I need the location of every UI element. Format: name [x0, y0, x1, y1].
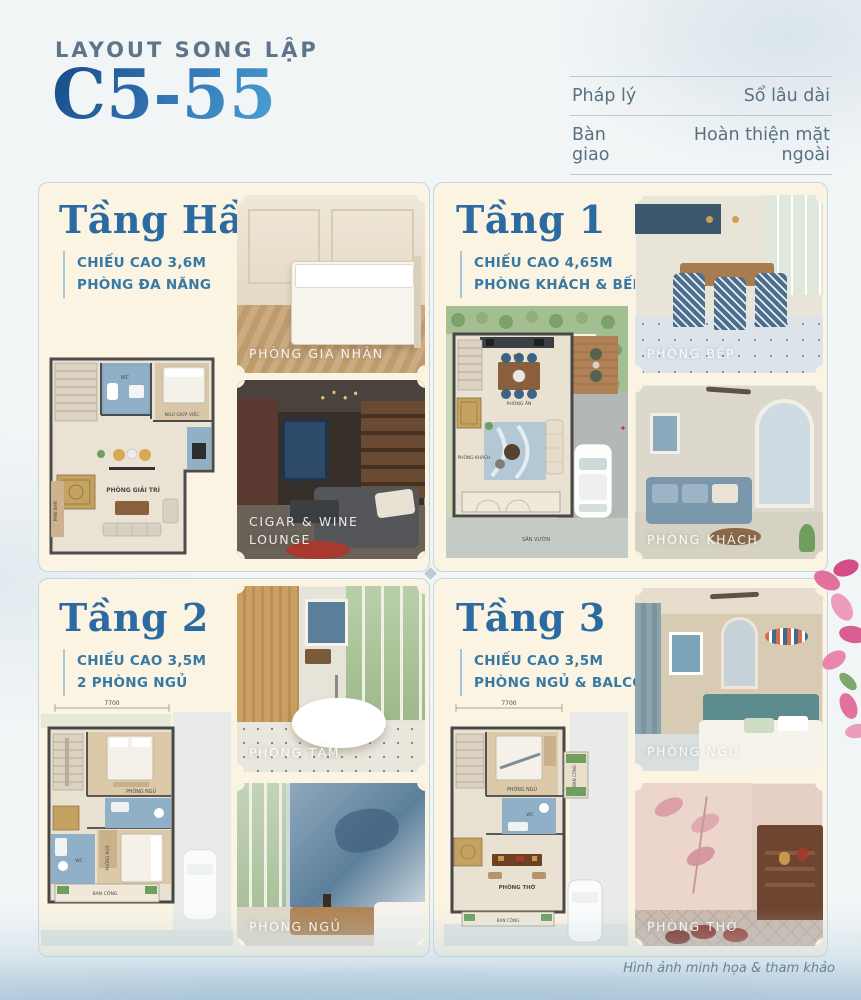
room-label: SÂN VƯỜN [522, 536, 550, 543]
photo-caption: PHÒNG NGỦ [249, 918, 341, 937]
section-tang-1: Tầng 1 CHIẾU CAO 4,65M PHÒNG KHÁCH & BẾP… [433, 182, 828, 572]
photo-caption: PHÒNG NGỦ [647, 743, 739, 762]
photo-caption: PHÒNG KHÁCH [647, 531, 758, 550]
floor-plan-drawing: BẾP PHÒNG ĂN PHÒNG KHÁCH SÂN VƯỜN [446, 306, 628, 558]
art-layer [282, 419, 327, 480]
plan-dimension: 7700 [501, 700, 516, 707]
photo-phong-tam: PHÒNG TẮM [237, 586, 425, 772]
floor-plan-drawing: WC NGỦ GIÚP VIỆC PHÒNG GIẢI TRÍ MINI BAR [45, 355, 229, 557]
art-layer [292, 698, 386, 748]
footer-disclaimer: Hình ảnh minh họa & tham khảo [623, 961, 835, 976]
flower-petal [844, 722, 861, 740]
art-layer [635, 588, 823, 614]
art-layer [650, 413, 680, 454]
room-label: BAN CÔNG [572, 765, 577, 787]
floor-specs: CHIẾU CAO 3,6M PHÒNG ĐA NĂNG [63, 251, 211, 298]
spec-line: CHIẾU CAO 3,5M [77, 651, 206, 673]
photo-caption: CIGAR & WINE LOUNGE [249, 513, 369, 551]
art-layer [335, 675, 338, 697]
info-label: Bàn giao [572, 125, 646, 165]
art-layer [237, 586, 299, 727]
art-layer [361, 401, 425, 498]
info-value: Sổ lâu dài [744, 86, 830, 106]
art-layer [755, 399, 814, 508]
art-layer [316, 387, 361, 405]
spec-line: CHIẾU CAO 3,6M [77, 253, 211, 275]
room-label: WC [526, 812, 534, 818]
floor-specs: CHIẾU CAO 4,65M PHÒNG KHÁCH & BẾP [460, 251, 643, 298]
room-label: MINI BAR [53, 501, 59, 521]
art-layer [799, 524, 816, 552]
room-label: PHÒNG THỜ [499, 884, 536, 891]
art-layer [652, 484, 678, 503]
photo-phong-ngu-tang-3: PHÒNG NGỦ [635, 588, 823, 771]
art-layer [635, 783, 752, 913]
floor-plan-tang-ham: WC NGỦ GIÚP VIỆC PHÒNG GIẢI TRÍ MINI BAR [45, 355, 229, 557]
layout-code: C5-55 [52, 58, 276, 133]
spec-line: PHÒNG KHÁCH & BẾP [474, 275, 643, 297]
art-layer [714, 277, 746, 330]
room-label: WC [75, 858, 83, 864]
art-layer [673, 273, 705, 326]
info-row-legal: Pháp lý Sổ lâu dài [570, 77, 832, 116]
flower-leaf [836, 670, 859, 693]
floor-title: Tầng 2 [59, 599, 209, 637]
room-label: PHÒNG KHÁCH [458, 454, 491, 461]
info-value: Hoàn thiện mặt ngoài [646, 125, 830, 165]
art-layer [755, 273, 787, 326]
photo-phong-gia-nhan: PHÒNG GIA NHÂN [237, 195, 425, 373]
spec-line: CHIẾU CAO 4,65M [474, 253, 643, 275]
art-layer [323, 894, 331, 907]
photo-phong-khach: PHÒNG KHÁCH [635, 385, 823, 559]
spec-line: PHÒNG ĐA NĂNG [77, 275, 211, 297]
flower-petal [838, 624, 861, 646]
art-layer [305, 599, 349, 646]
photo-caption: PHÒNG BẾP [647, 345, 735, 364]
photo-cigar-wine-lounge: CIGAR & WINE LOUNGE [237, 380, 425, 559]
room-label: PHÒNG GIẢI TRÍ [106, 486, 160, 494]
info-table: Pháp lý Sổ lâu dài Bàn giao Hoàn thiện m… [570, 76, 832, 175]
flower-petal [836, 690, 861, 721]
section-tang-ham: Tầng Hầm CHIẾU CAO 3,6M PHÒNG ĐA NĂNG PH… [38, 182, 430, 572]
spec-line: 2 PHÒNG NGỦ [77, 673, 206, 695]
room-label: PHÒNG NGỦ [105, 845, 110, 870]
floor-title: Tầng 3 [456, 599, 606, 637]
plan-dimension: 7700 [104, 700, 119, 707]
photo-caption: PHÒNG GIA NHÂN [249, 345, 384, 364]
info-label: Pháp lý [572, 86, 636, 106]
photo-caption: PHÒNG TẮM [249, 744, 340, 763]
bougainvillea-flower-decor [799, 558, 861, 758]
art-layer [635, 603, 661, 738]
art-layer [706, 387, 751, 395]
floor-specs: CHIẾU CAO 3,5M 2 PHÒNG NGỦ [63, 649, 206, 696]
room-label: WC [121, 375, 130, 381]
flower-petal [826, 590, 857, 625]
room-label: PHÒNG ĂN [507, 400, 532, 407]
art-layer [305, 649, 331, 664]
photo-caption: PHÒNG THỜ [647, 918, 740, 937]
art-layer [237, 398, 278, 516]
art-layer [765, 867, 816, 871]
art-layer [237, 783, 286, 907]
section-tang-2: Tầng 2 CHIẾU CAO 3,5M 2 PHÒNG NGỦ PHÒNG … [38, 578, 430, 957]
flower-petal [819, 646, 850, 673]
art-layer [721, 617, 757, 689]
art-layer [375, 489, 416, 519]
brochure-page: LAYOUT SONG LẬP C5-55 Pháp lý Sổ lâu dài… [0, 0, 861, 1000]
art-layer [414, 256, 422, 349]
photo-phong-bep: PHÒNG BẾP [635, 195, 823, 373]
floor-title: Tầng 1 [456, 201, 606, 239]
art-layer [669, 632, 703, 675]
room-label: BAN CÔNG [92, 890, 117, 897]
art-layer [295, 264, 414, 287]
room-label: BẾP [513, 352, 523, 360]
art-layer [757, 825, 823, 920]
floor-plan-tang-1: BẾP PHÒNG ĂN PHÒNG KHÁCH SÂN VƯỜN [446, 306, 628, 558]
section-tang-3: Tầng 3 CHIẾU CAO 3,5M PHÒNG NGỦ & BALCON… [433, 578, 828, 957]
info-row-handover: Bàn giao Hoàn thiện mặt ngoài [570, 116, 832, 175]
